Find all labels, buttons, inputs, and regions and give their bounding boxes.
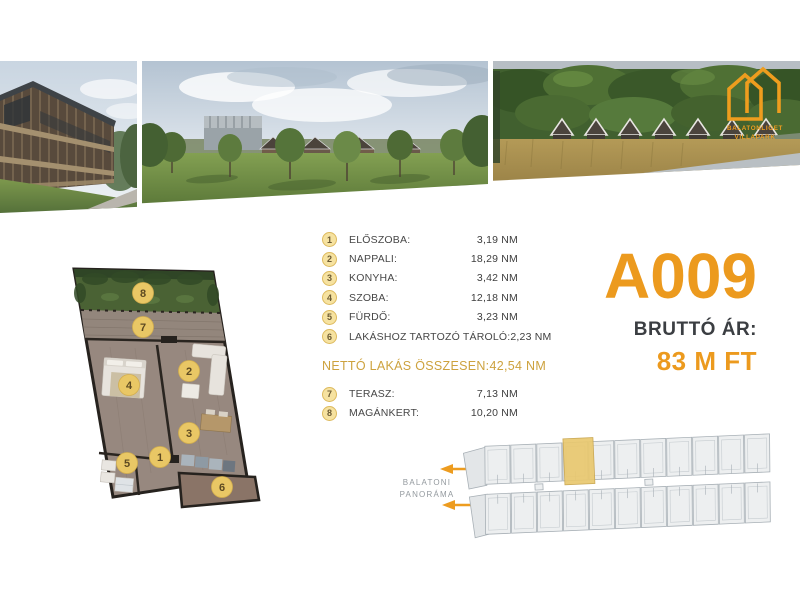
room-value: 7,13 NM bbox=[477, 388, 518, 400]
highlighted-unit bbox=[563, 438, 595, 485]
forest-villas-illustration: BALATONLIGET VILLAPARK bbox=[493, 61, 800, 182]
room-row-terasz: 7 TERASZ: 7,13 NM bbox=[322, 384, 518, 403]
room-label: NAPPALI: bbox=[349, 253, 397, 265]
photo-villa-exterior bbox=[0, 61, 137, 213]
price-label: BRUTTÓ ÁR: bbox=[527, 319, 757, 341]
photo-forest-villas: BALATONLIGET VILLAPARK bbox=[493, 61, 800, 182]
plan-badge-3: 3 bbox=[179, 423, 200, 444]
plan-badge-4: 4 bbox=[119, 375, 140, 396]
room-number-badge: 2 bbox=[322, 252, 337, 267]
room-row-furdo: 5 FÜRDŐ: 3,23 NM bbox=[322, 308, 518, 327]
panorama-label-line1: BALATONI bbox=[403, 478, 451, 487]
room-label: FÜRDŐ: bbox=[349, 311, 390, 323]
room-number-badge: 3 bbox=[322, 271, 337, 286]
plan-badge-2: 2 bbox=[179, 361, 200, 382]
logo-text-line2: VILLAPARK bbox=[735, 134, 776, 141]
room-number-badge: 1 bbox=[322, 232, 337, 247]
room-number-badge: 5 bbox=[322, 310, 337, 325]
panorama-label-line2: PANORÁMA bbox=[400, 490, 455, 499]
floor-plan: 8 7 4 2 3 1 5 6 bbox=[55, 255, 285, 520]
svg-text:6: 6 bbox=[219, 482, 225, 494]
room-label: MAGÁNKERT: bbox=[349, 407, 419, 419]
svg-text:1: 1 bbox=[157, 452, 163, 464]
plan-badge-7: 7 bbox=[133, 317, 154, 338]
room-value: 18,29 NM bbox=[471, 253, 518, 265]
svg-text:3: 3 bbox=[186, 428, 192, 440]
room-label: SZOBA: bbox=[349, 292, 389, 304]
plan-badge-1: 1 bbox=[150, 447, 171, 468]
room-table: 1 ELŐSZOBA: 3,19 NM 2 NAPPALI: 18,29 NM … bbox=[322, 230, 518, 423]
brochure-page: { "brand": { "name_line1": "BALATONLIGET… bbox=[0, 0, 800, 600]
price-value: 83 M FT bbox=[527, 346, 757, 377]
site-plan: BALATONI PANORÁMA bbox=[395, 430, 795, 545]
building-row-top bbox=[483, 434, 771, 484]
room-value: 12,18 NM bbox=[471, 292, 518, 304]
room-label: ELŐSZOBA: bbox=[349, 234, 410, 246]
logo-text-line1: BALATONLIGET bbox=[727, 125, 783, 132]
room-row-konyha: 3 KONYHA: 3,42 NM bbox=[322, 269, 518, 288]
room-number-badge: 8 bbox=[322, 406, 337, 421]
svg-text:4: 4 bbox=[126, 380, 133, 392]
building-row-bottom bbox=[484, 482, 772, 534]
room-row-szoba: 4 SZOBA: 12,18 NM bbox=[322, 288, 518, 307]
villa-exterior-illustration bbox=[0, 61, 137, 213]
svg-text:8: 8 bbox=[140, 288, 146, 300]
unit-info-block: A009 BRUTTÓ ÁR: 83 M FT bbox=[527, 246, 757, 377]
room-label: TERASZ: bbox=[349, 388, 395, 400]
plan-badge-5: 5 bbox=[117, 453, 138, 474]
room-label: KONYHA: bbox=[349, 272, 398, 284]
plan-badge-8: 8 bbox=[133, 283, 154, 304]
unit-code: A009 bbox=[527, 246, 757, 307]
net-total-row: NETTÓ LAKÁS ÖSSZESEN: 42,54 NM bbox=[322, 355, 518, 377]
svg-text:2: 2 bbox=[186, 366, 192, 378]
room-number-badge: 7 bbox=[322, 387, 337, 402]
room-row-magankert: 8 MAGÁNKERT: 10,20 NM bbox=[322, 404, 518, 423]
photo-park-panorama bbox=[142, 61, 488, 204]
room-value: 10,20 NM bbox=[471, 407, 518, 419]
building-plan bbox=[463, 430, 774, 538]
room-row-tarolo: 6 LAKÁSHOZ TARTOZÓ TÁROLÓ: 2,23 NM bbox=[322, 327, 518, 346]
room-value: 3,42 NM bbox=[477, 272, 518, 284]
room-value: 3,19 NM bbox=[477, 234, 518, 246]
plan-badge-6: 6 bbox=[212, 477, 233, 498]
net-total-label: NETTÓ LAKÁS ÖSSZESEN: bbox=[322, 359, 489, 373]
svg-text:7: 7 bbox=[140, 322, 146, 334]
room-row-nappali: 2 NAPPALI: 18,29 NM bbox=[322, 249, 518, 268]
svg-text:5: 5 bbox=[124, 458, 130, 470]
room-value: 3,23 NM bbox=[477, 311, 518, 323]
room-label: LAKÁSHOZ TARTOZÓ TÁROLÓ: bbox=[349, 331, 510, 343]
room-row-eloszoba: 1 ELŐSZOBA: 3,19 NM bbox=[322, 230, 518, 249]
park-panorama-illustration bbox=[142, 61, 488, 204]
room-number-badge: 6 bbox=[322, 329, 337, 344]
room-number-badge: 4 bbox=[322, 290, 337, 305]
